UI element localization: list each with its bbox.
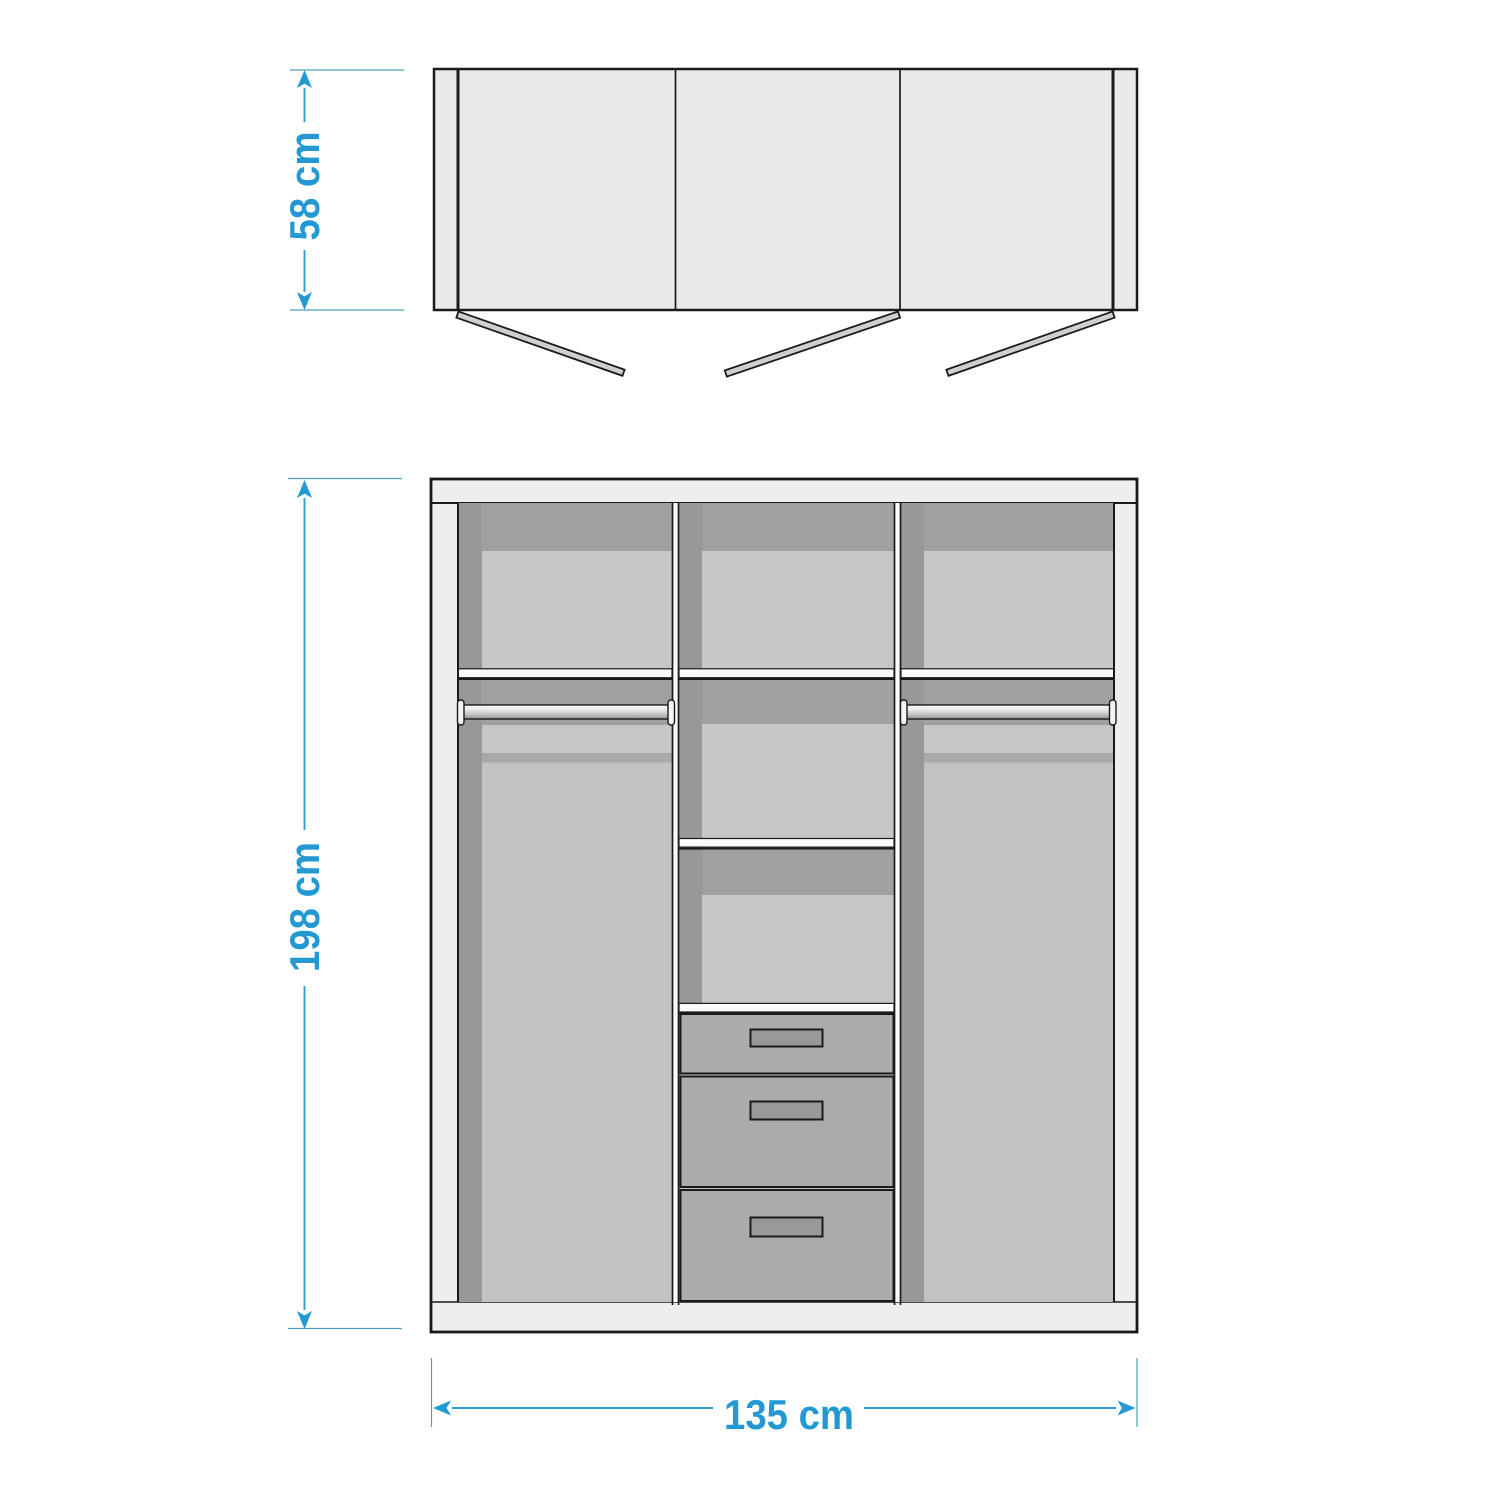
svg-text:58 cm: 58 cm [281, 132, 328, 241]
svg-text:135 cm: 135 cm [724, 1391, 854, 1438]
svg-text:198 cm: 198 cm [281, 842, 328, 972]
